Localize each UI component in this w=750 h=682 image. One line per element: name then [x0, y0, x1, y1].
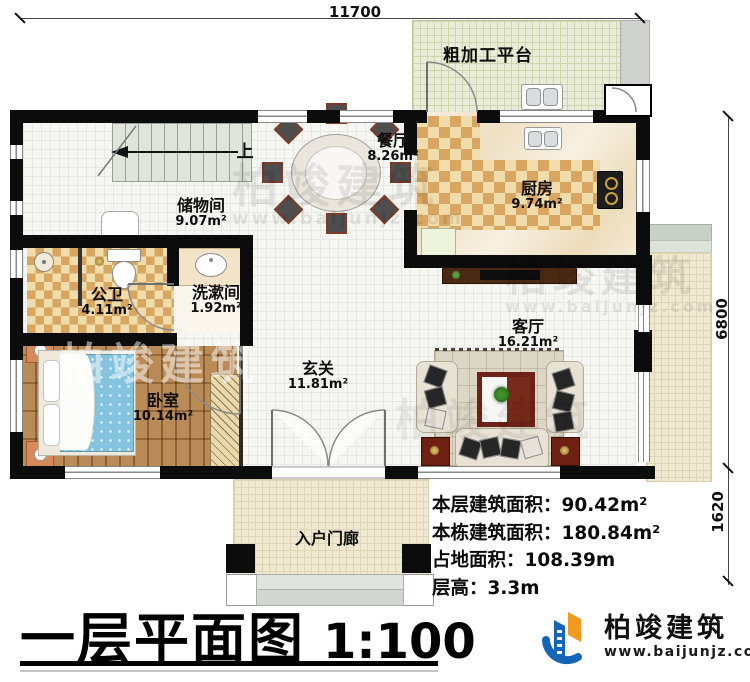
- room-label-entry: 玄关 11.81m²: [268, 360, 368, 392]
- wall-segment: [10, 110, 258, 123]
- logo-block-blue: [554, 620, 565, 662]
- wall-segment: [560, 466, 655, 479]
- sofa-cushion: [424, 386, 447, 409]
- window: [10, 145, 23, 159]
- kitchen-east-window: [636, 160, 650, 212]
- living-south-window: [418, 466, 560, 479]
- wall-segment: [477, 110, 500, 123]
- entry-porch-floor: [233, 479, 429, 577]
- wall-segment: [307, 110, 340, 123]
- plant-small: [452, 271, 460, 279]
- wall-segment: [10, 215, 23, 250]
- title-underline: [20, 661, 438, 666]
- stat-floor-area: 本层建筑面积：90.42m²: [432, 492, 712, 520]
- table-plant: [494, 387, 509, 402]
- burner: [605, 192, 618, 205]
- wardrobe: [210, 374, 240, 468]
- bed-blanket: [60, 354, 95, 450]
- sofa-cushion: [479, 436, 502, 459]
- coffee-table: [477, 372, 535, 427]
- sofa-cushion: [552, 410, 574, 432]
- side-table: [421, 437, 450, 466]
- wall-segment: [10, 466, 65, 479]
- stove: [597, 171, 623, 209]
- kitchen-sink: [524, 127, 562, 150]
- wall-segment: [160, 466, 272, 479]
- room-label-kitchen: 厨房 9.74m²: [487, 180, 587, 212]
- dining-chair: [390, 162, 411, 183]
- bath-bedroom-wall: [23, 333, 177, 346]
- window: [258, 110, 307, 123]
- tv-cabinet: [442, 267, 577, 284]
- sofa-main: [455, 428, 549, 470]
- floor-plan-canvas: 11700 6800 1620: [0, 0, 750, 682]
- stat-footprint: 占地面积：108.39m: [432, 547, 712, 575]
- sofa-left: [416, 361, 458, 433]
- building-stats: 本层建筑面积：90.42m² 本栋建筑面积：180.84m² 占地面积：108.…: [432, 492, 712, 602]
- outdoor-sink: [521, 84, 563, 110]
- logo-company-name: 柏竣建筑: [604, 614, 750, 644]
- burner: [605, 177, 618, 190]
- room-label-bedroom: 卧室 10.14m²: [113, 392, 213, 424]
- window: [340, 110, 393, 123]
- drain-dot: [42, 260, 46, 264]
- window: [638, 305, 650, 332]
- dining-chair: [326, 213, 347, 234]
- logo-website: www.baijunjz.com: [604, 644, 750, 660]
- dimension-right-upper: 6800: [713, 287, 731, 351]
- sofa-cushion: [552, 390, 575, 413]
- stat-total-area: 本栋建筑面积：180.84m²: [432, 520, 712, 548]
- company-logo: 柏竣建筑 www.baijunjz.com: [538, 606, 750, 668]
- dimension-top-width: 11700: [315, 3, 395, 21]
- pendant-fixture: [95, 257, 104, 266]
- dining-chair: [262, 162, 283, 183]
- bath-wash-divider: [167, 248, 179, 286]
- side-door-recess: [604, 84, 652, 117]
- sofa-cushion: [520, 436, 544, 460]
- logo-building-icon: [538, 606, 596, 668]
- side-table: [551, 437, 580, 466]
- room-label-living: 客厅 16.21m²: [478, 318, 578, 350]
- pillow: [43, 360, 60, 402]
- room-label-bathroom: 公卫 4.11m²: [57, 286, 157, 318]
- sofa-cushion: [499, 437, 521, 459]
- stair-up-label: 上: [234, 143, 256, 162]
- pillow: [43, 404, 60, 446]
- sink-basin: [526, 88, 541, 106]
- room-label-dining: 餐厅 8.26m²: [343, 132, 443, 164]
- right-dimension-line: [728, 118, 729, 585]
- rough-processing-platform-floor: [412, 20, 622, 114]
- sofa-cushion: [424, 407, 447, 430]
- sink-basin: [528, 131, 542, 147]
- terrace-floor: [646, 252, 712, 482]
- wall-segment: [10, 110, 23, 145]
- tv: [480, 270, 540, 280]
- staircase: [112, 123, 252, 182]
- bedroom-hall-partition: [239, 346, 243, 466]
- room-label-storage: 储物间 9.07m²: [151, 197, 251, 229]
- wall-segment: [636, 110, 650, 160]
- sofa-right: [546, 361, 584, 433]
- bedroom-south-window: [65, 466, 160, 479]
- room-label-washroom: 洗漱间 1.92m²: [166, 284, 266, 316]
- room-label-platform: 粗加工平台: [418, 47, 558, 66]
- refrigerator: [421, 228, 456, 257]
- washbasin: [195, 253, 227, 277]
- porch-pillar: [226, 544, 255, 573]
- bedroom-window: [10, 360, 23, 432]
- wall-segment: [634, 330, 652, 372]
- storage-bath-wall: [23, 235, 253, 248]
- wall-segment: [385, 466, 418, 479]
- title-underline-thin: [20, 670, 438, 672]
- logo-block-orange: [568, 612, 581, 642]
- wall-segment: [10, 278, 23, 360]
- living-east-slider: [638, 372, 650, 462]
- porch-pillar: [402, 544, 431, 573]
- kitchen-window: [500, 110, 593, 123]
- sofa-cushion: [423, 364, 447, 388]
- sofa-cushion: [552, 368, 576, 392]
- floor-drain: [34, 252, 54, 272]
- table-ornament: [430, 446, 439, 455]
- sink-basin: [544, 131, 558, 147]
- kitchen-south-wall: [415, 255, 650, 268]
- table-ornament: [560, 446, 569, 455]
- bathroom-window: [10, 250, 23, 278]
- window: [10, 201, 23, 215]
- wall-segment: [10, 159, 23, 201]
- room-label-porch: 入户门廊: [257, 530, 397, 548]
- sink-basin: [543, 88, 558, 106]
- faucet-dot: [209, 258, 213, 262]
